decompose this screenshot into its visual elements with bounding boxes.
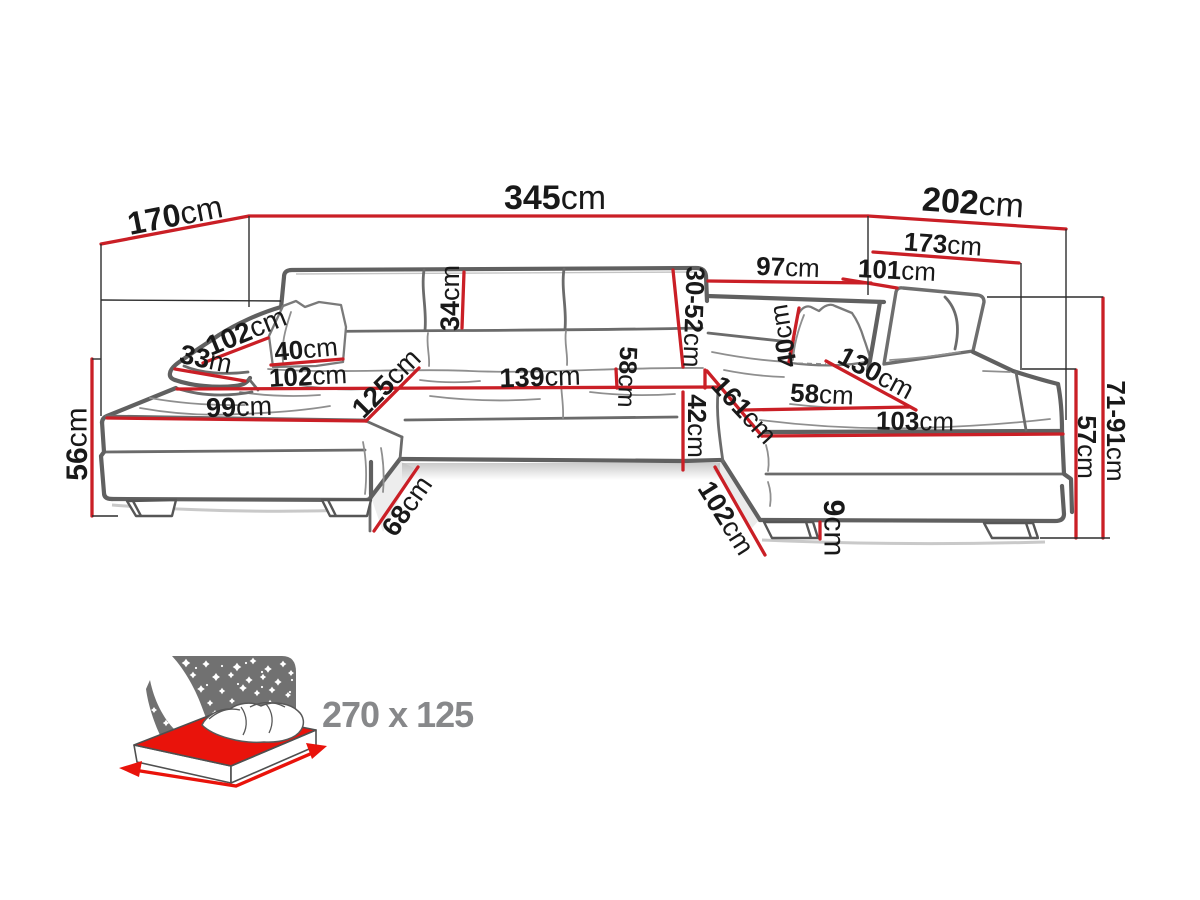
svg-text:58cm: 58cm bbox=[612, 346, 642, 408]
svg-text:139cm: 139cm bbox=[499, 361, 581, 394]
svg-text:9cm: 9cm bbox=[818, 500, 851, 557]
svg-text:101cm: 101cm bbox=[857, 253, 937, 287]
svg-text:42cm: 42cm bbox=[682, 394, 712, 458]
svg-text:56cm: 56cm bbox=[61, 407, 94, 480]
svg-text:97cm: 97cm bbox=[756, 251, 821, 283]
svg-text:57cm: 57cm bbox=[1072, 415, 1102, 479]
svg-text:345cm: 345cm bbox=[504, 179, 606, 217]
svg-text:30-52cm: 30-52cm bbox=[677, 266, 711, 368]
svg-text:99cm: 99cm bbox=[205, 391, 272, 423]
svg-text:71-91cm: 71-91cm bbox=[1101, 380, 1131, 481]
svg-text:58cm: 58cm bbox=[789, 377, 854, 410]
svg-text:40cm: 40cm bbox=[273, 331, 339, 366]
svg-text:103cm: 103cm bbox=[876, 405, 955, 436]
svg-text:270 x 125: 270 x 125 bbox=[322, 694, 474, 735]
svg-text:34cm: 34cm bbox=[435, 265, 465, 331]
svg-text:202cm: 202cm bbox=[921, 180, 1025, 225]
